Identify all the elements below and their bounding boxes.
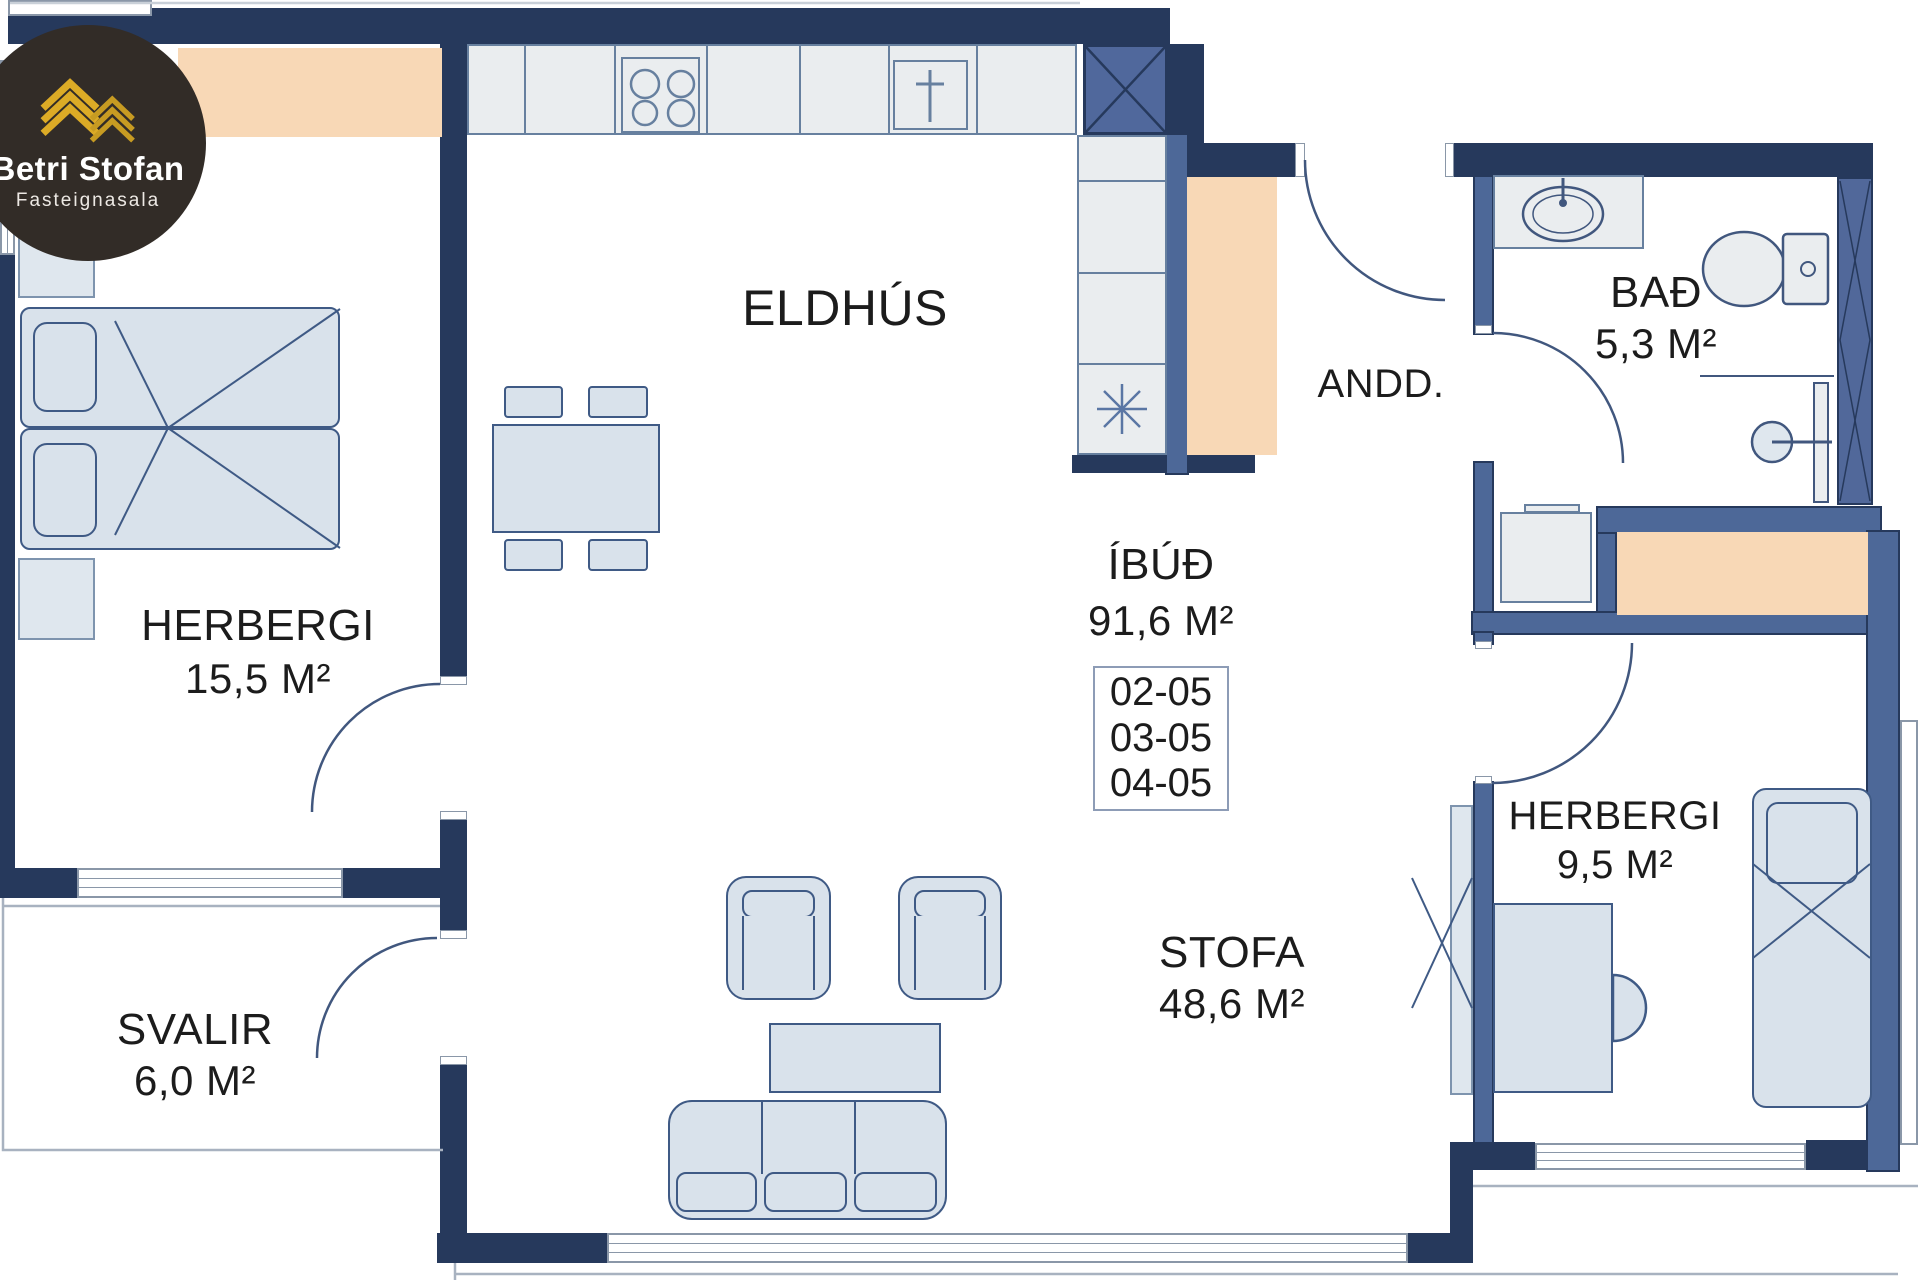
armchair-cushion [742, 890, 815, 918]
counter-divider [1079, 272, 1165, 274]
armchair-seat [742, 916, 815, 990]
wall-living-bottom-left [437, 1233, 607, 1263]
coffee-table [769, 1023, 941, 1093]
counter-divider [706, 46, 708, 133]
pillow [33, 443, 97, 537]
door-arc-bedroom2 [1492, 643, 1632, 783]
agency-logo: Betri Stofan Fasteignasala [0, 25, 206, 261]
dining-chair [588, 539, 648, 571]
wall-counter-column-right [1167, 135, 1187, 473]
window-right-strip [1900, 720, 1918, 1145]
washing-machine-drawer [1524, 504, 1580, 513]
shower-icon [1700, 376, 1834, 502]
wall-cap [1475, 776, 1492, 784]
wardrobe-entry [1187, 177, 1277, 455]
room-area-bath: 5,3 M² [1531, 320, 1781, 367]
counter-divider [799, 46, 801, 133]
sofa-seat-cushion [854, 1172, 937, 1212]
shaft-box [1083, 44, 1168, 135]
counter-divider [614, 46, 616, 133]
room-label-balcony: SVALIR [0, 1005, 395, 1054]
dining-chair [504, 539, 563, 571]
wall-entry-top-right [1453, 143, 1873, 177]
wall-bedroom2-right [1868, 532, 1898, 1170]
wall-cap [1445, 143, 1454, 177]
logo-title: Betri Stofan [0, 150, 185, 188]
floor-plan: ELDHÚS HERBERGI 15,5 M² SVALIR 6,0 M² AN… [0, 0, 1920, 1280]
dining-table [492, 424, 660, 533]
wall-cap [440, 1056, 467, 1065]
unit-number: 02-05 [1095, 670, 1227, 716]
gold-chevron-building-icon [28, 74, 148, 146]
unit-numbers-box: 02-05 03-05 04-05 [1093, 666, 1229, 811]
wall-top-main [8, 8, 1170, 44]
kitchen-sink-icon [893, 60, 968, 130]
wall-cap [440, 930, 467, 939]
room-label-kitchen: ELDHÚS [645, 280, 1045, 336]
wardrobe-hall [1617, 532, 1868, 615]
room-area-living: 48,6 M² [1082, 980, 1382, 1027]
wardrobe-bedroom1 [178, 48, 442, 137]
room-area-bedroom2: 9,5 M² [1490, 843, 1740, 888]
pillow [33, 322, 97, 412]
counter-divider [976, 46, 978, 133]
wall-left-exterior [0, 253, 15, 898]
wall-bedroom1-partition-upper [440, 44, 467, 684]
wall-bath-bottom [1598, 508, 1880, 532]
wall-bedroom1-partition-lower [440, 812, 467, 868]
wall-cap [1295, 143, 1305, 177]
room-label-bath: BAÐ [1531, 268, 1781, 317]
radiator-cabinet [1450, 805, 1473, 1095]
washing-machine-icon [1500, 512, 1592, 603]
counter-divider [1079, 180, 1165, 182]
logo-tagline: Fasteignasala [16, 190, 160, 212]
sofa-seat-cushion [764, 1172, 847, 1212]
apartment-area: 91,6 M² [1011, 597, 1311, 644]
pillow [1766, 802, 1858, 884]
room-label-bedroom2: HERBERGI [1490, 794, 1740, 839]
unit-number: 03-05 [1095, 716, 1227, 762]
wall-entry-top-left [1204, 143, 1305, 177]
kitchen-counter-top [467, 44, 1077, 135]
armchair-seat [914, 916, 986, 990]
kitchen-counter-column [1077, 135, 1167, 455]
wall-balcony-partition-lower [440, 1058, 467, 1235]
counter-divider [888, 46, 890, 133]
armchair-cushion [914, 890, 986, 918]
wall-bedroom2-bottom-left [1450, 1142, 1535, 1170]
room-label-living: STOFA [1082, 928, 1382, 977]
window-bedroom2-bottom [1535, 1143, 1806, 1170]
door-arc-entrance [1305, 160, 1445, 300]
bath-sink-icon [1494, 176, 1643, 248]
room-label-entry: ANDD. [1231, 362, 1531, 407]
wall-living-step-vertical [1450, 1170, 1473, 1240]
counter-divider [1079, 363, 1165, 365]
unit-number: 04-05 [1095, 761, 1227, 807]
stove-icon [621, 57, 700, 133]
wall-cap [440, 811, 467, 820]
sofa-divider [854, 1102, 856, 1174]
room-label-bedroom1: HERBERGI [58, 601, 458, 650]
desk-chair [1613, 975, 1646, 1041]
dining-chair [504, 386, 563, 418]
sofa-seat-cushion [676, 1172, 757, 1212]
room-area-bedroom1: 15,5 M² [58, 655, 458, 702]
wall-niche-left [1475, 463, 1492, 635]
wall-kitchen-column-bottom [1072, 455, 1255, 473]
desk [1493, 903, 1613, 1093]
bath-tall-cabinet [1837, 177, 1873, 505]
apartment-label: ÍBÚÐ [1011, 540, 1311, 589]
wall-cap [1475, 641, 1492, 649]
door-arc-bedroom1 [312, 684, 440, 812]
window-bedroom1-bottom [77, 868, 343, 898]
window-top-left [8, 0, 152, 16]
dining-chair [588, 386, 648, 418]
wall-cap [1475, 325, 1492, 334]
room-area-balcony: 6,0 M² [0, 1057, 395, 1104]
counter-divider [524, 46, 526, 133]
sofa-divider [761, 1102, 763, 1174]
wall-bedroom2-top [1473, 613, 1898, 633]
window-living-bottom [607, 1233, 1408, 1263]
wall-bath-left [1475, 177, 1492, 333]
